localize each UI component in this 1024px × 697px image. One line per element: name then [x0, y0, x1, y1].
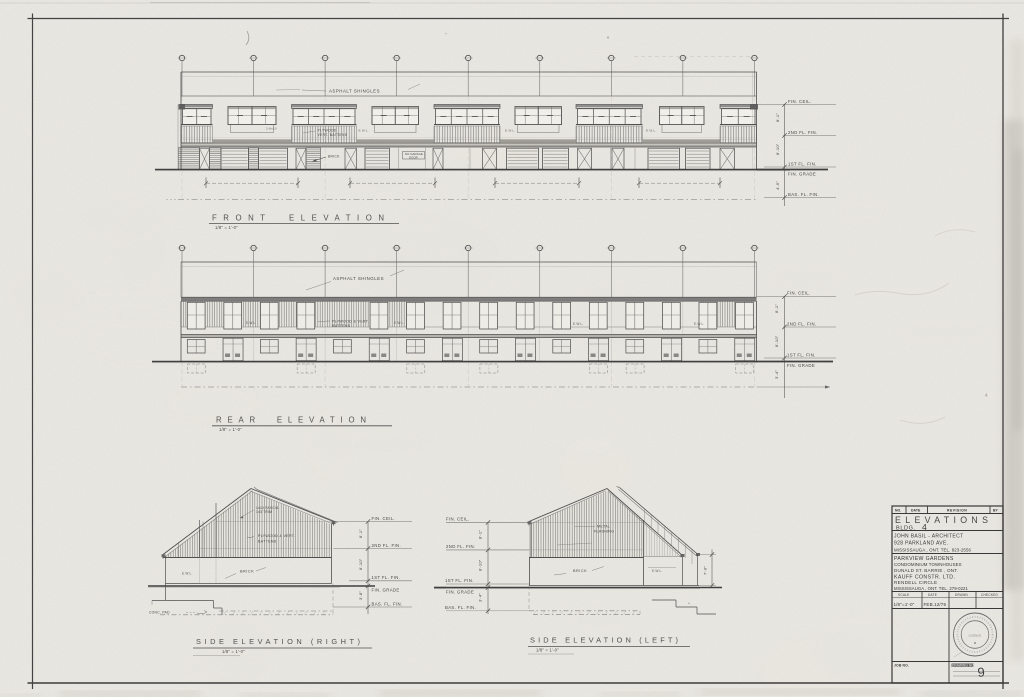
svg-text:7'-0": 7'-0" [703, 566, 708, 575]
svg-text:BAS. FL. FIN.: BAS. FL. FIN. [372, 602, 403, 607]
svg-text:SCALE: SCALE [898, 593, 909, 597]
svg-text:PLYWOOD & VERT.: PLYWOOD & VERT. [258, 534, 295, 538]
svg-text:FIN. GRADE: FIN. GRADE [788, 171, 816, 176]
svg-text:1/8" = 1'-0": 1/8" = 1'-0" [219, 427, 242, 432]
svg-text:8'-10": 8'-10" [774, 335, 779, 347]
svg-text:METAL: METAL [597, 525, 610, 529]
svg-text:PLYWOOD & VERT.: PLYWOOD & VERT. [332, 320, 369, 324]
svg-text:E.W.L.: E.W.L. [359, 129, 369, 133]
svg-text:BRICK: BRICK [328, 155, 340, 159]
svg-text:3'-4": 3'-4" [774, 370, 779, 379]
svg-text:BRICK: BRICK [573, 569, 587, 573]
svg-text:1/8"=1'-0": 1/8"=1'-0" [894, 602, 915, 607]
svg-text:FIN. CEIL.: FIN. CEIL. [788, 99, 812, 104]
svg-text:BAS. FL. FIN.: BAS. FL. FIN. [788, 192, 819, 197]
svg-text:1ST FL. FIN.: 1ST FL. FIN. [787, 353, 816, 358]
svg-text:3'-8": 3'-8" [358, 591, 363, 600]
svg-text:VERT. BATTENS: VERT. BATTENS [318, 133, 348, 137]
svg-text:DRAWING NO.: DRAWING NO. [952, 663, 975, 667]
svg-text:8'-10": 8'-10" [478, 559, 483, 571]
svg-text:MISSISSAUGA , ONT. TEL. 279-0: MISSISSAUGA , ONT. TEL. 279-0221 [894, 586, 968, 591]
svg-text:E.W.L.: E.W.L. [652, 569, 663, 573]
svg-text:BATTENS: BATTENS [332, 324, 351, 328]
svg-text:8'-1": 8'-1" [478, 530, 483, 539]
svg-text:MISSISSAUGA , ONT. TEL. 823-2: MISSISSAUGA , ONT. TEL. 823-2556 [894, 548, 972, 553]
svg-text:8'-1": 8'-1" [774, 304, 779, 313]
svg-text:8'-1": 8'-1" [775, 113, 780, 122]
svg-text:3'-4": 3'-4" [478, 593, 483, 602]
svg-text:FLASHING: FLASHING [594, 530, 614, 534]
svg-text:1ST FL. FIN.: 1ST FL. FIN. [372, 575, 401, 580]
svg-text:1/8" = 1'-0": 1/8" = 1'-0" [222, 649, 245, 654]
svg-text:4'-6": 4'-6" [775, 181, 780, 190]
svg-text:E.W.L.: E.W.L. [646, 129, 656, 133]
svg-text:2ND FL. FIN.: 2ND FL. FIN. [372, 543, 402, 548]
svg-text:1x3 TRIM: 1x3 TRIM [256, 510, 272, 514]
svg-text:1/8" = 1'-0": 1/8" = 1'-0" [536, 648, 559, 653]
svg-text:BATTENS: BATTENS [258, 540, 277, 544]
svg-text:FIN. GRADE: FIN. GRADE [446, 590, 474, 595]
svg-text:REVISION: REVISION [947, 509, 967, 513]
svg-text:1/8" = 1'-0": 1/8" = 1'-0" [215, 225, 238, 230]
svg-text:8'-10": 8'-10" [775, 143, 780, 155]
svg-text:1ST FL. FIN.: 1ST FL. FIN. [445, 578, 474, 583]
svg-text:LICENCE: LICENCE [969, 634, 982, 638]
svg-text:DATE: DATE [911, 509, 921, 513]
svg-text:SIDE ELEVATION (LEFT): SIDE ELEVATION (LEFT) [530, 636, 678, 645]
svg-text:DRAWN: DRAWN [955, 593, 968, 597]
svg-text:2ND FL. FIN.: 2ND FL. FIN. [788, 130, 818, 135]
svg-text:DOOR: DOOR [409, 156, 418, 160]
svg-text:8'-1": 8'-1" [358, 529, 363, 538]
svg-text:928 PARKLAND AVE.: 928 PARKLAND AVE. [894, 541, 948, 547]
svg-text:BY: BY [993, 509, 999, 513]
svg-text:1ST FL. FIN.: 1ST FL. FIN. [788, 162, 817, 167]
svg-text:JOB NO.: JOB NO. [894, 664, 909, 668]
svg-text:DUNALD ST. BARRIE , ONT.: DUNALD ST. BARRIE , ONT. [894, 568, 958, 573]
svg-text:2-8x10: 2-8x10 [266, 127, 277, 131]
svg-text:E.W.L.: E.W.L. [694, 322, 705, 326]
svg-text:E.W.L.: E.W.L. [573, 322, 584, 326]
svg-text:BRICK: BRICK [240, 570, 254, 574]
svg-text:E.W.L.: E.W.L. [394, 321, 405, 325]
svg-text:CONDOMINIUM TOWNHOUSES: CONDOMINIUM TOWNHOUSES [894, 562, 962, 567]
svg-text:E.W.L.: E.W.L. [246, 321, 257, 325]
svg-text:2ND FL. FIN.: 2ND FL. FIN. [446, 544, 476, 549]
svg-text:ASPHALT SHINGLES: ASPHALT SHINGLES [329, 89, 380, 94]
svg-text:8'-10": 8'-10" [358, 558, 363, 570]
svg-text:E.W.L.: E.W.L. [182, 572, 193, 576]
svg-text:FIN. CEIL.: FIN. CEIL. [372, 516, 396, 521]
svg-text:ASPHALT SHINGLES: ASPHALT SHINGLES [333, 276, 384, 281]
svg-text:FIN. CEIL.: FIN. CEIL. [446, 517, 470, 522]
svg-text:NO.: NO. [895, 509, 901, 513]
svg-text:FIN. GRADE: FIN. GRADE [372, 588, 400, 593]
svg-text:FIN. GRADE: FIN. GRADE [787, 363, 815, 368]
svg-text:RENDELL CIRCLE: RENDELL CIRCLE [894, 580, 937, 585]
svg-text:BAS. FL. FIN.: BAS. FL. FIN. [445, 605, 476, 610]
svg-text:E.W.L.: E.W.L. [505, 129, 515, 133]
svg-text:CHECKED: CHECKED [981, 593, 998, 597]
svg-text:FEB.12/75: FEB.12/75 [924, 602, 947, 607]
svg-text:2ND FL. FIN.: 2ND FL. FIN. [787, 322, 817, 327]
svg-text:JOHN BASIL - ARCHITECT: JOHN BASIL - ARCHITECT [894, 534, 963, 540]
svg-text:FIN. CEIL.: FIN. CEIL. [787, 291, 811, 296]
svg-text:CONC. PAD: CONC. PAD [149, 611, 170, 615]
svg-text:DATE: DATE [928, 593, 937, 597]
